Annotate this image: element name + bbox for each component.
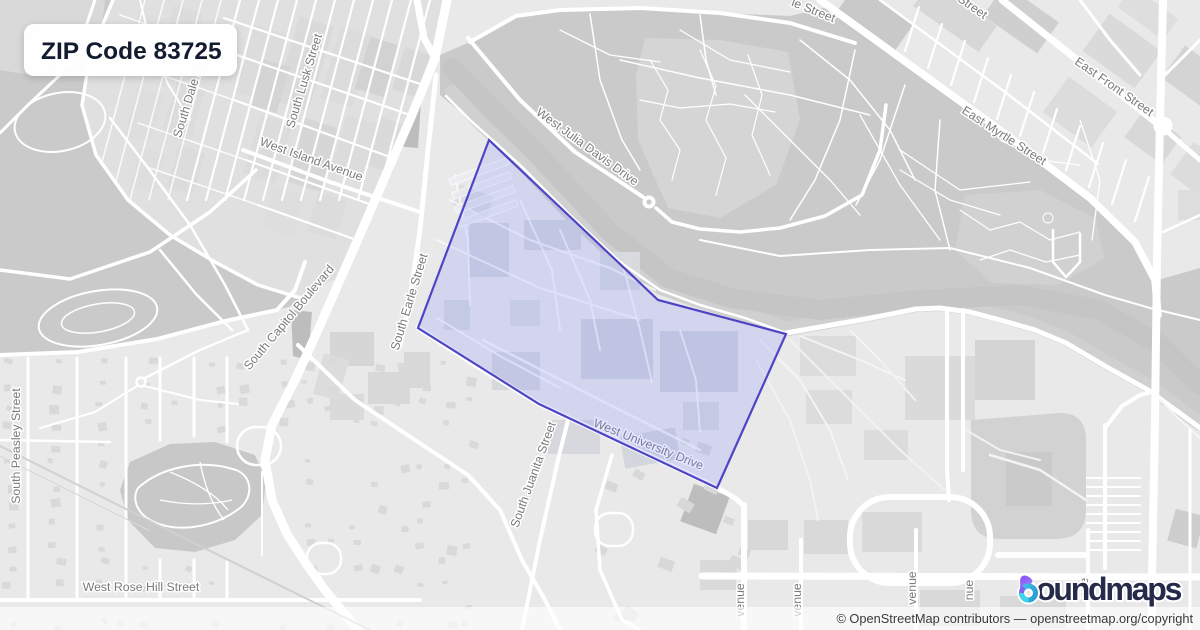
svg-text:venue: venue bbox=[905, 571, 919, 605]
svg-text:nue: nue bbox=[962, 580, 976, 601]
svg-text:oundmaps: oundmaps bbox=[1036, 571, 1182, 607]
svg-text:West Rose Hill Street: West Rose Hill Street bbox=[83, 580, 200, 594]
svg-text:South Peasley Street: South Peasley Street bbox=[9, 388, 23, 504]
svg-text:ZIP Code 83725: ZIP Code 83725 bbox=[41, 38, 222, 65]
svg-text:© OpenStreetMap contributors —: © OpenStreetMap contributors — openstree… bbox=[836, 611, 1193, 626]
